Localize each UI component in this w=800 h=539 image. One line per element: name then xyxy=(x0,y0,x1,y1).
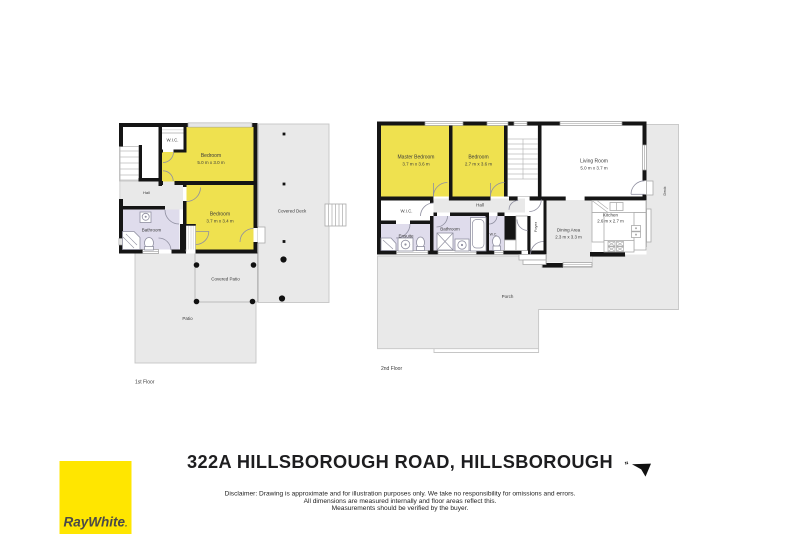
svg-text:Bathroom: Bathroom xyxy=(142,228,162,233)
svg-text:Measurements should be verifie: Measurements should be verified by the b… xyxy=(332,505,469,512)
svg-text:Covered Patio: Covered Patio xyxy=(211,277,240,282)
svg-text:Hall: Hall xyxy=(143,190,150,195)
svg-text:322A HILLSBOROUGH ROAD, HILLSB: 322A HILLSBOROUGH ROAD, HILLSBOROUGH xyxy=(187,452,613,472)
svg-text:Bedroom: Bedroom xyxy=(468,155,488,161)
svg-text:Deck: Deck xyxy=(662,186,667,195)
svg-text:Patio: Patio xyxy=(182,316,193,321)
svg-text:1st Floor: 1st Floor xyxy=(135,380,155,386)
svg-text:2.6 m x 2.7 m: 2.6 m x 2.7 m xyxy=(597,219,624,224)
svg-text:2nd Floor: 2nd Floor xyxy=(381,366,402,372)
svg-text:3.7 m x 3.6 m: 3.7 m x 3.6 m xyxy=(402,162,430,167)
svg-text:Foyer: Foyer xyxy=(533,221,538,232)
svg-text:Bedroom: Bedroom xyxy=(201,153,221,159)
svg-text:W.C.: W.C. xyxy=(490,233,498,237)
svg-text:W.I.C.: W.I.C. xyxy=(167,138,179,143)
svg-text:Disclaimer: Drawing is approxi: Disclaimer: Drawing is approximate and f… xyxy=(225,491,576,498)
svg-text:Porch: Porch xyxy=(502,294,514,299)
svg-text:5.0 m x 3.7 m: 5.0 m x 3.7 m xyxy=(580,166,608,171)
svg-text:Covered Deck: Covered Deck xyxy=(278,209,307,214)
svg-text:Bedroom: Bedroom xyxy=(210,212,230,218)
svg-text:RayWhite.: RayWhite. xyxy=(63,515,127,530)
svg-text:Master Bedroom: Master Bedroom xyxy=(398,155,435,161)
svg-text:2.7 m x 3.6 m: 2.7 m x 3.6 m xyxy=(465,162,493,167)
svg-text:All dimensions are measured in: All dimensions are measured internally a… xyxy=(304,498,497,505)
svg-text:2.3 m x 3.3 m: 2.3 m x 3.3 m xyxy=(555,235,582,240)
svg-text:3.7 m x 3.4 m: 3.7 m x 3.4 m xyxy=(206,219,234,224)
svg-text:W.I.C.: W.I.C. xyxy=(401,209,413,214)
svg-text:Ensuite: Ensuite xyxy=(398,234,414,239)
svg-text:Living Room: Living Room xyxy=(580,159,608,165)
svg-text:Kitchen: Kitchen xyxy=(603,213,619,218)
svg-text:Dining Area: Dining Area xyxy=(557,228,581,233)
svg-text:Hall: Hall xyxy=(476,203,484,208)
svg-text:Bathroom: Bathroom xyxy=(440,227,460,232)
svg-text:5.0 m x 3.0 m: 5.0 m x 3.0 m xyxy=(197,160,225,165)
